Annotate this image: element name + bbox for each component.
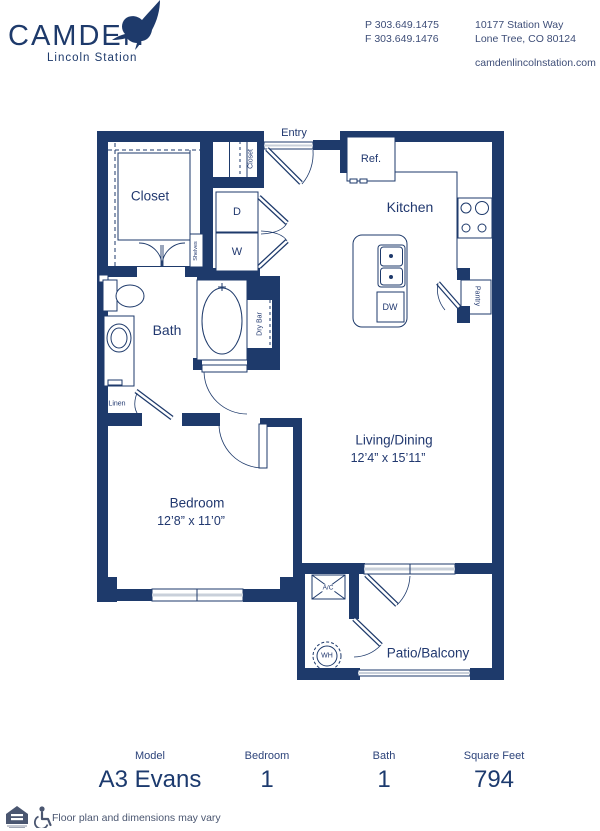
- label-walkin-closet: Closet: [131, 189, 169, 204]
- laundry-bifold-doors: [259, 197, 287, 267]
- summary-bath-value: 1: [373, 766, 396, 794]
- floorplan-svg: [0, 0, 600, 831]
- label-bath: Bath: [153, 322, 182, 338]
- label-dry-bar: Dry Bar: [257, 312, 264, 336]
- summary-model-value: A3 Evans: [99, 766, 202, 794]
- entry-door: [264, 142, 313, 184]
- summary-bedroom-label: Bedroom: [245, 750, 290, 762]
- label-washer: W: [232, 246, 242, 258]
- patio-door-living: [366, 575, 410, 605]
- accessibility-icon: [33, 806, 53, 828]
- summary-sqft: Square Feet 794: [464, 750, 525, 794]
- summary-sqft-label: Square Feet: [464, 750, 525, 762]
- summary-model-label: Model: [99, 750, 202, 762]
- kitchen-island: [353, 235, 407, 327]
- label-bedroom-dims: 12’8” x 11’0”: [157, 514, 225, 528]
- label-bedroom: Bedroom: [170, 496, 225, 511]
- patio-door-utility: [354, 619, 381, 657]
- summary-model: Model A3 Evans: [99, 750, 202, 794]
- bedroom-window: [152, 589, 243, 601]
- bath-door: [202, 365, 247, 414]
- living-window: [364, 564, 455, 574]
- summary-bath: Bath 1: [373, 750, 396, 794]
- label-refrigerator: Ref.: [361, 153, 381, 165]
- label-pantry: Pantry: [474, 286, 481, 306]
- bedroom-door: [219, 424, 267, 468]
- summary-sqft-value: 794: [464, 766, 525, 794]
- washer-dryer: [216, 192, 258, 271]
- summary-bedroom: Bedroom 1: [245, 750, 290, 794]
- pantry-door: [437, 283, 459, 310]
- label-entry-closet: Closet: [248, 149, 255, 169]
- label-wh: WH: [321, 653, 333, 660]
- stove: [458, 198, 492, 238]
- label-dishwasher: DW: [383, 302, 398, 312]
- label-shelves: Shelves: [193, 241, 199, 261]
- label-kitchen: Kitchen: [387, 199, 434, 215]
- label-patio-balcony: Patio/Balcony: [387, 646, 470, 661]
- bathroom-vanity: [104, 316, 134, 386]
- label-living-dining: Living/Dining: [355, 433, 432, 448]
- disclaimer-text: Floor plan and dimensions may vary: [52, 812, 221, 824]
- label-living-dims: 12’4” x 15’11”: [351, 451, 426, 465]
- toilet: [99, 275, 144, 311]
- floorplan-page: CAMDEN Lincoln Station P 303.649.1475 F …: [0, 0, 600, 831]
- label-dryer: D: [233, 206, 241, 218]
- patio-railing: [358, 670, 470, 676]
- label-linen: Linen: [108, 401, 125, 408]
- summary-bath-label: Bath: [373, 750, 396, 762]
- bathtub: [197, 280, 247, 360]
- label-ac: A/C: [322, 585, 335, 592]
- equal-housing-icon: [5, 806, 29, 828]
- label-entry: Entry: [281, 127, 307, 139]
- summary-bedroom-value: 1: [245, 766, 290, 794]
- closet-double-doors: [139, 243, 185, 266]
